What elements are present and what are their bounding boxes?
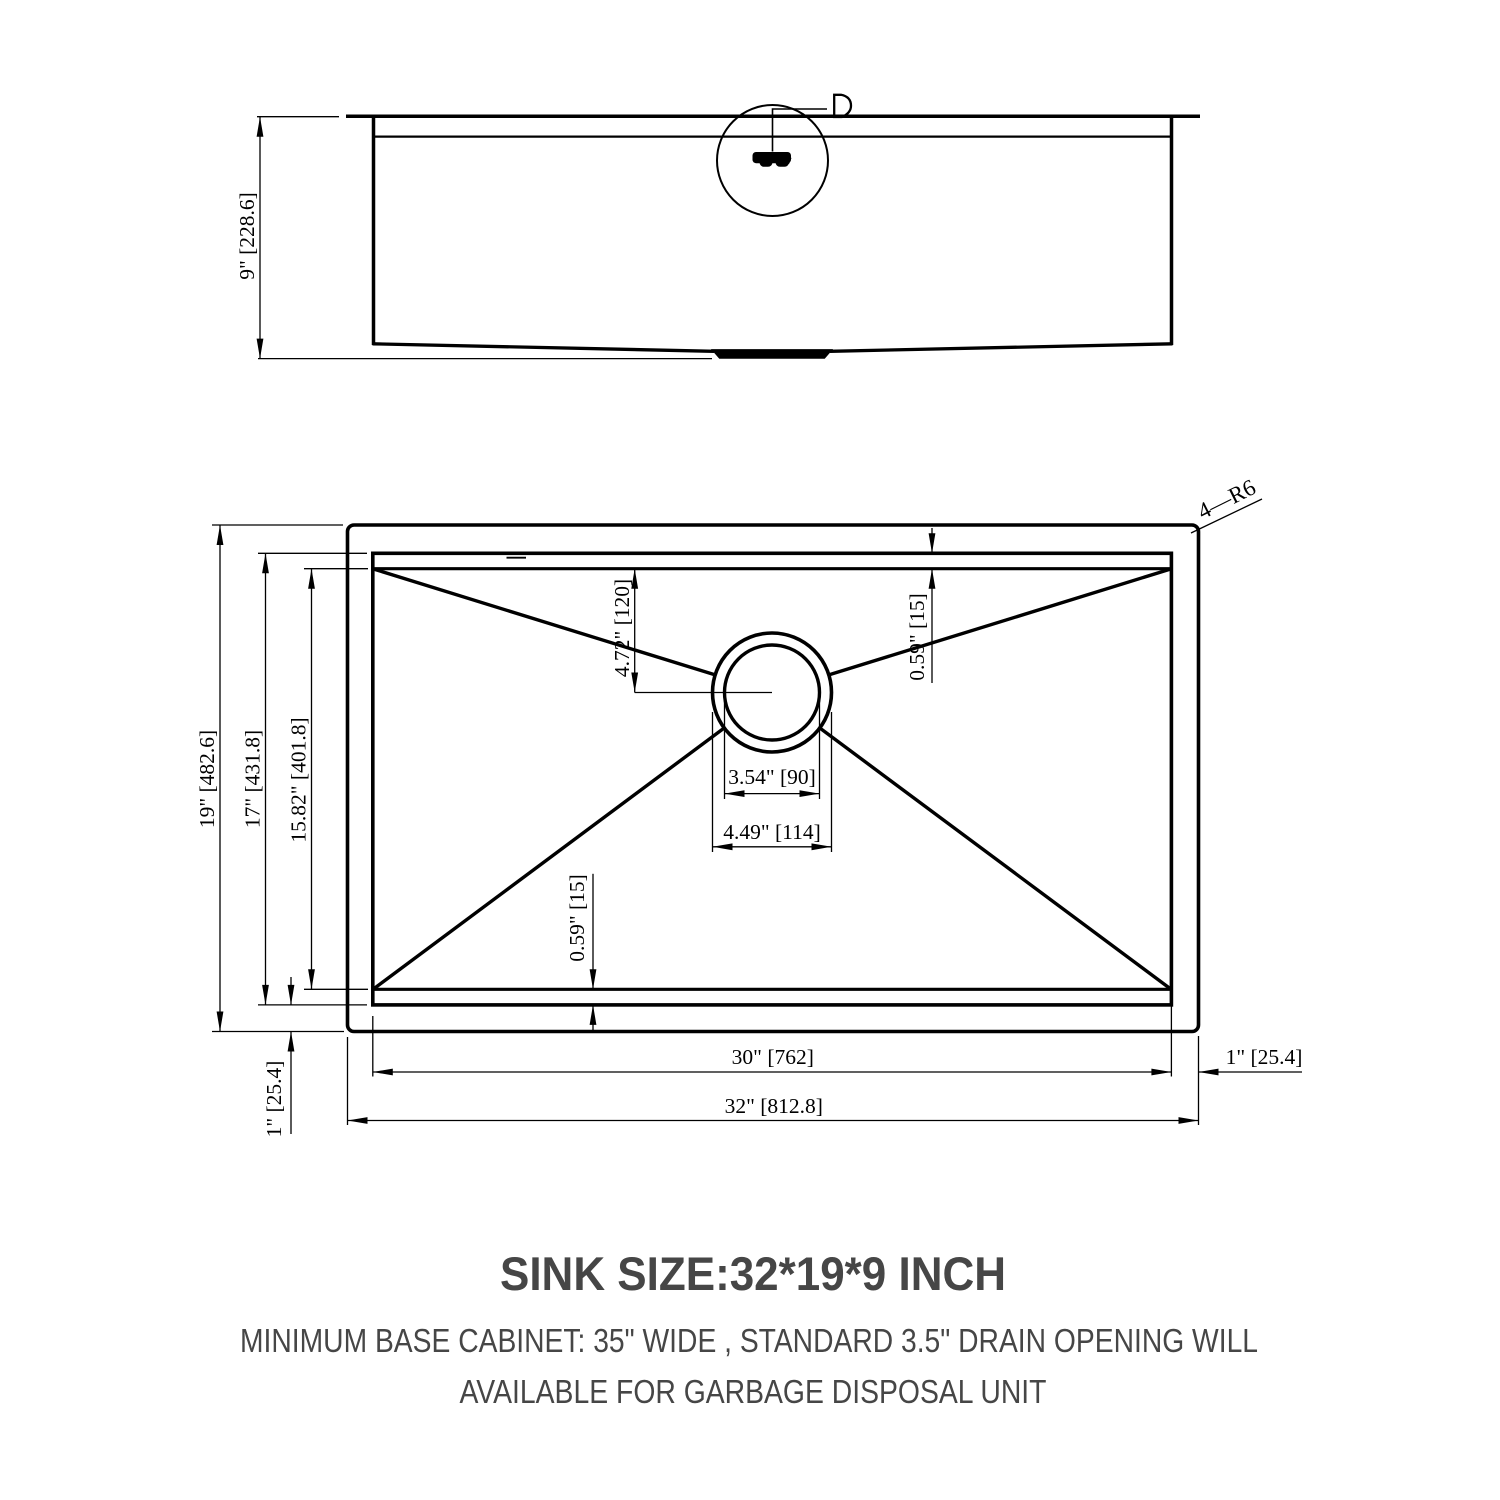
svg-text:SINK SIZE:32*19*9 INCH: SINK SIZE:32*19*9 INCH [500,1248,1006,1301]
svg-text:3.54" [90]: 3.54" [90] [728,765,816,789]
svg-text:32" [812.8]: 32" [812.8] [725,1094,823,1118]
svg-text:MINIMUM BASE CABINET: 35" WIDE: MINIMUM BASE CABINET: 35" WIDE , STANDAR… [240,1323,1258,1360]
svg-text:1" [25.4]: 1" [25.4] [262,1061,286,1138]
svg-text:4.49" [114]: 4.49" [114] [723,820,821,844]
svg-text:19" [482.6]: 19" [482.6] [195,730,219,828]
svg-text:1" [25.4]: 1" [25.4] [1226,1045,1303,1069]
svg-text:AVAILABLE FOR GARBAGE DISPOSAL: AVAILABLE FOR GARBAGE DISPOSAL UNIT [460,1374,1047,1411]
svg-text:15.82" [401.8]: 15.82" [401.8] [287,717,311,842]
svg-text:0.59" [15]: 0.59" [15] [905,593,929,681]
svg-text:17" [431.8]: 17" [431.8] [241,730,265,828]
svg-text:9" [228.6]: 9" [228.6] [235,192,259,280]
svg-text:0.59" [15]: 0.59" [15] [565,874,589,962]
svg-text:30" [762]: 30" [762] [732,1045,814,1069]
svg-text:4.72" [120]: 4.72" [120] [610,579,634,677]
svg-text:4—R6: 4—R6 [1194,474,1260,524]
